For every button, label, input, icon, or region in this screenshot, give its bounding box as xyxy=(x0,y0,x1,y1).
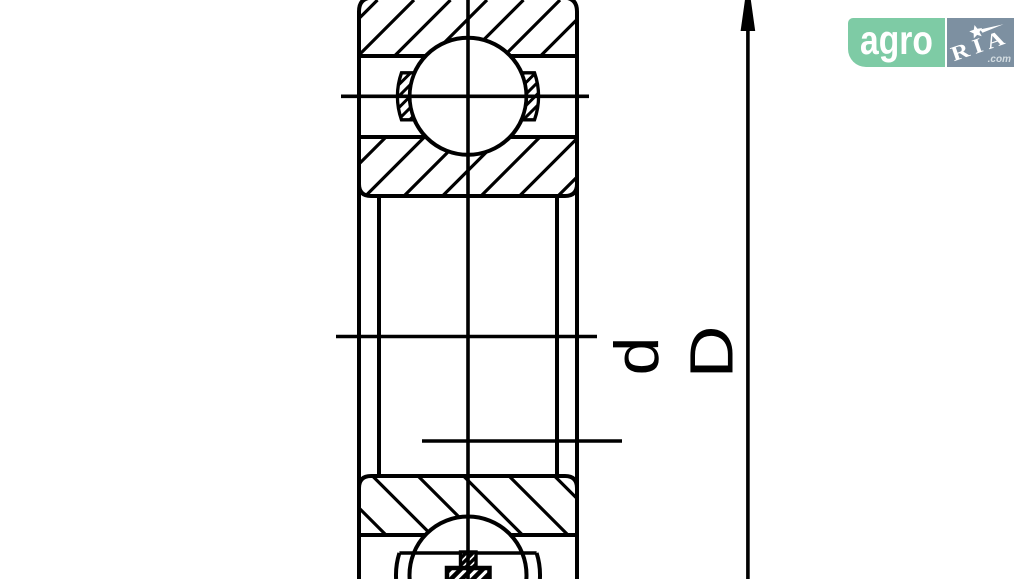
svg-text:d: d xyxy=(603,337,672,376)
svg-text:D: D xyxy=(678,326,746,379)
